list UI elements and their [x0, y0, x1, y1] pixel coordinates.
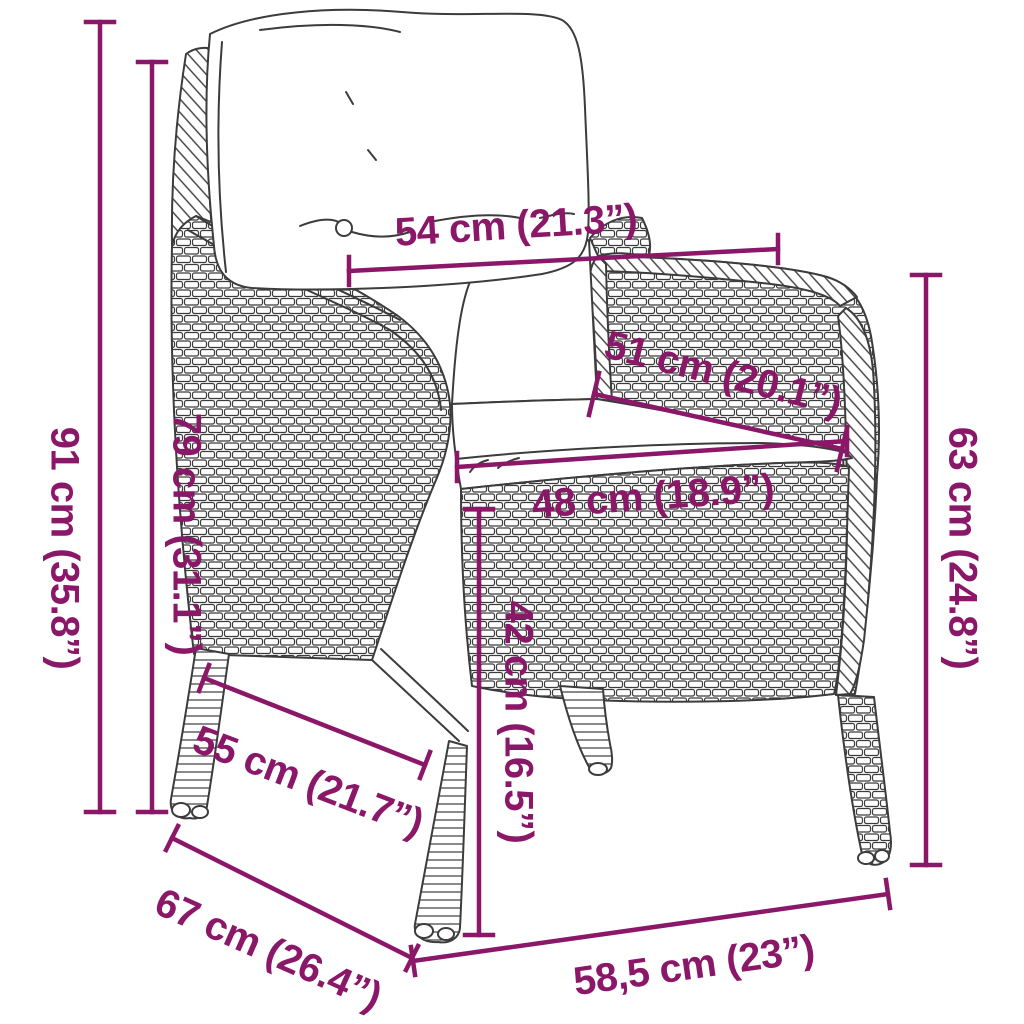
dimension-diagram: 91 cm (35.8”) 79 cm (31.1”) 54 cm (21.3”… [0, 0, 1024, 1024]
dimension-label-seat-height: 42 cm (16.5”) [496, 601, 541, 844]
chair-front-rail-inner [381, 649, 468, 731]
rear-left-foot [589, 763, 607, 775]
dimension-label-back-height: 79 cm (31.1”) [164, 413, 209, 656]
front-right-foot-b [438, 928, 454, 940]
rear-right-foot-b [875, 850, 889, 862]
front-left-foot-a [172, 803, 190, 817]
front-left-foot-b [192, 806, 208, 818]
dimension-label-overall-height: 91 cm (35.8”) [42, 427, 87, 670]
rear-right-leg [838, 695, 891, 865]
chair-illustration [0, 0, 1024, 1024]
back-cushion-button [336, 220, 352, 236]
dimension-label-armrest-height: 63 cm (24.8”) [940, 427, 985, 670]
front-right-foot-a [415, 924, 433, 938]
chair-front-rail [372, 660, 459, 741]
dimension-line-back-height [138, 62, 166, 812]
dimension-line-armrest-height [912, 275, 940, 865]
rear-left-leg [560, 686, 612, 774]
dimension-line-overall-height [86, 22, 114, 812]
rear-right-foot-a [858, 852, 874, 864]
